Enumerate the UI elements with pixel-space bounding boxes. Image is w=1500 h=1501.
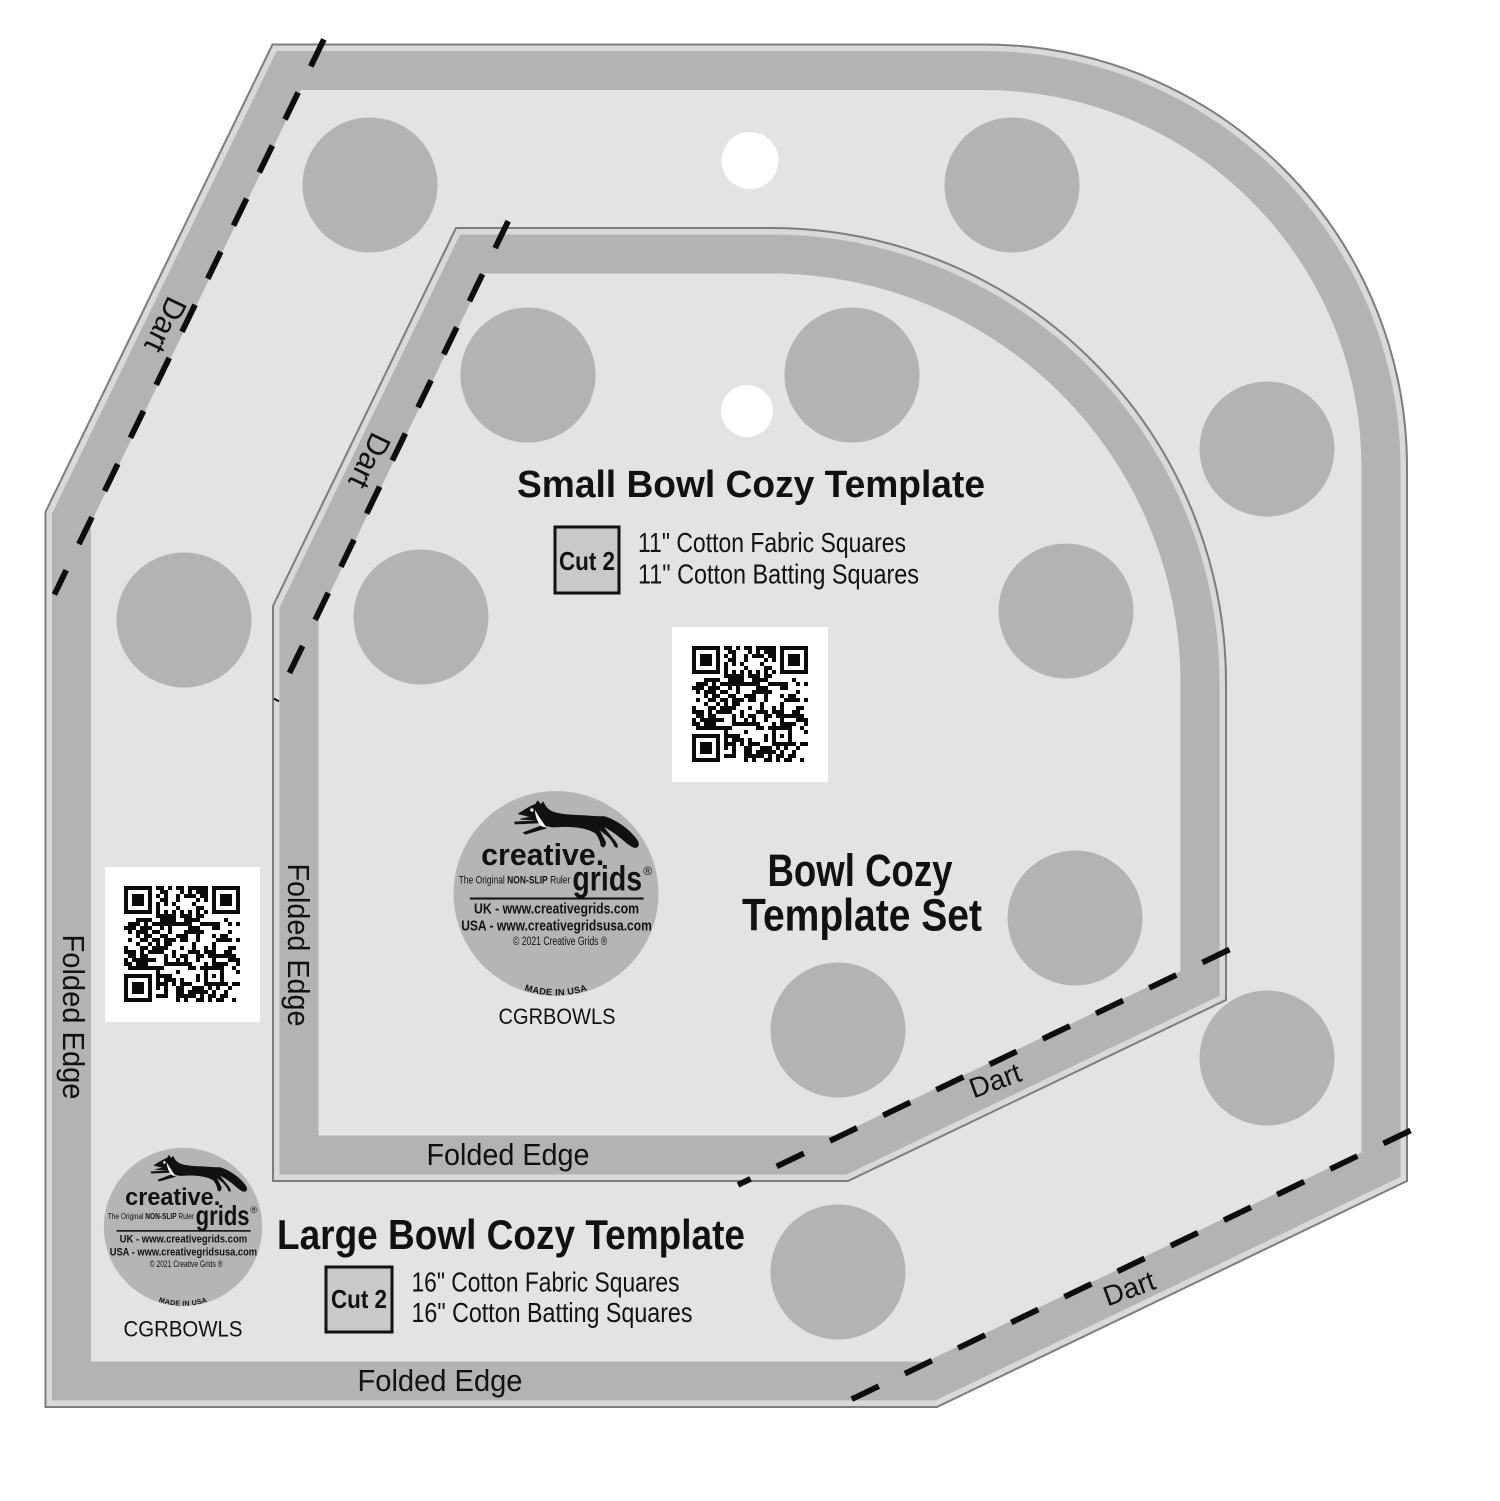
svg-text:Folded Edge: Folded Edge: [56, 935, 91, 1100]
svg-text:CGRBOWLS: CGRBOWLS: [124, 1317, 243, 1342]
svg-text:Folded Edge: Folded Edge: [281, 864, 316, 1027]
svg-text:Folded Edge: Folded Edge: [358, 1363, 523, 1398]
svg-text:Template Set: Template Set: [742, 890, 982, 941]
svg-text:Folded Edge: Folded Edge: [427, 1137, 590, 1172]
svg-text:16" Cotton Batting Squares: 16" Cotton Batting Squares: [412, 1297, 693, 1328]
svg-text:Small Bowl Cozy Template: Small Bowl Cozy Template: [517, 464, 985, 506]
svg-text:Cut 2: Cut 2: [559, 546, 615, 576]
svg-text:CGRBOWLS: CGRBOWLS: [499, 1004, 616, 1029]
svg-text:11" Cotton Fabric Squares: 11" Cotton Fabric Squares: [638, 527, 906, 558]
svg-text:Bowl Cozy: Bowl Cozy: [768, 845, 953, 896]
svg-text:11" Cotton Batting Squares: 11" Cotton Batting Squares: [638, 559, 919, 590]
svg-text:16" Cotton Fabric Squares: 16" Cotton Fabric Squares: [412, 1267, 680, 1298]
svg-text:Large Bowl Cozy Template: Large Bowl Cozy Template: [277, 1211, 745, 1258]
svg-text:Cut 2: Cut 2: [331, 1284, 387, 1314]
